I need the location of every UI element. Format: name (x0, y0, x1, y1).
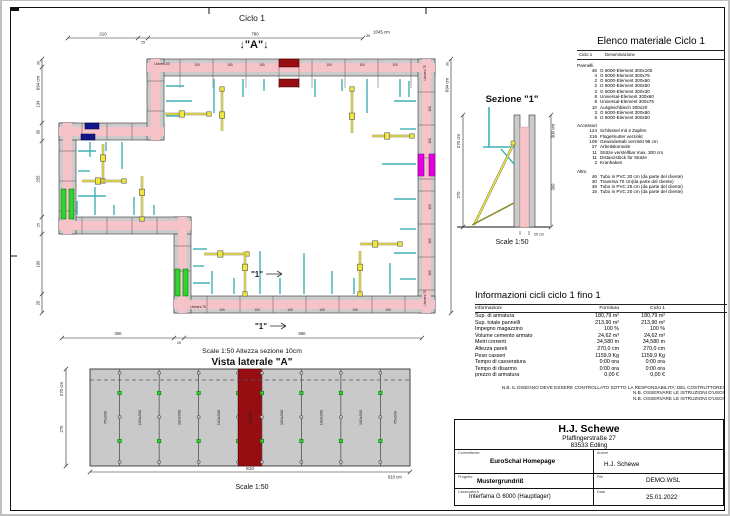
sezione-brace-head (511, 141, 515, 145)
dim-label: 810 (246, 466, 254, 471)
plan-wall-core (174, 300, 435, 309)
dim-label: 300 cm (551, 123, 556, 138)
dim-label: 20 (36, 300, 41, 305)
material-list-title: Elenco materiale Ciclo 1 (577, 36, 725, 47)
info-row: Sup. di armatura180,79 m²180,79 m² (475, 313, 727, 320)
company-address1: Pfaffingerstraße 27 (455, 435, 723, 442)
label-file: File (597, 475, 603, 479)
vista-title: Vista laterale "A" (152, 357, 352, 368)
value-committente: EuroSchal Homepage (490, 458, 555, 465)
dim-label: 30 (366, 34, 370, 38)
brace-turnbuckle-icon (139, 189, 144, 195)
panel-size-label: 100 (428, 270, 432, 276)
section-1-arrow (277, 274, 282, 277)
brace-turnbuckle-icon (349, 113, 354, 119)
material-col-name: Denominazione (605, 52, 635, 57)
vista-tie-point (260, 415, 263, 418)
panel-size-label: 100 (392, 63, 398, 67)
vista-clamp-icon (260, 439, 263, 442)
vista-clamp-icon (118, 391, 121, 394)
dim-label: 134 (36, 100, 41, 108)
plan-wall-core (59, 127, 164, 136)
info-row: prezzo di armatura0,00 €0,00 € (475, 372, 727, 379)
vista-tie-point (158, 415, 161, 418)
dim-label: 25 (37, 223, 41, 227)
cell-data: Data 25.01.2022 (594, 488, 723, 505)
material-list-header: Ciclo 1 Denominazione (577, 50, 725, 60)
brace-head-icon (243, 292, 247, 296)
vista-tie-point (197, 460, 200, 463)
vista-panel-label: 100x300 (279, 409, 284, 425)
panel-size-label: 100 (385, 308, 391, 312)
info-row: Peso casseri1159,9 Kg1159,9 Kg (475, 353, 727, 360)
dim-label: 270 (59, 425, 64, 433)
panel-size-label: 100 (428, 138, 432, 144)
vista-panel-label: 75x300 (393, 410, 398, 424)
plan-wall-core (151, 59, 160, 140)
material-col-qty: Ciclo 1 (579, 52, 605, 57)
vista-clamp-icon (157, 391, 160, 394)
cell-autore: Autore H.J. Schewe (594, 449, 723, 473)
vista-caption: Scale 1:50 (162, 484, 342, 491)
info-col-informazioni: Informazioni (475, 306, 567, 311)
info-col-fornitura: Fornitura (567, 306, 619, 311)
dim-label: 694 cm (36, 75, 41, 90)
plan-caption: Scale 1:50 Altezza sezione 10cm (142, 348, 362, 355)
value-data: 25.01.2022 (646, 494, 678, 501)
label-progetto: Progetto (458, 475, 472, 479)
dim-label: 270 (456, 191, 461, 199)
info-row: Sup. totale pannelli213,90 m²213,90 m² (475, 320, 727, 327)
dim-label: 25 (141, 41, 145, 45)
dim-label: 780 (251, 32, 259, 37)
material-item-name: G 6000-Element 300x50 (600, 115, 650, 120)
info-row: Altezza pareti270,0 cm270,0 cm (475, 346, 727, 353)
vista-tie-point (339, 415, 342, 418)
panel-size-label: 100 (352, 308, 358, 312)
vista-clamp-icon (300, 391, 303, 394)
highlighted-element-green (175, 269, 180, 296)
vista-tie-point (118, 415, 121, 418)
vista-tie-point (300, 460, 303, 463)
dim-label: 210 (99, 32, 107, 37)
vista-tie-point (260, 460, 263, 463)
highlighted-element-magenta (418, 154, 424, 176)
vista-tie-point (118, 371, 121, 374)
panel-size-label: 100 (428, 106, 432, 112)
vista-tie-point (260, 371, 263, 374)
section-1-marker: "1" (255, 322, 267, 331)
sezione-caption: Scale 1:50 (457, 239, 567, 246)
company-address2: 83533 Edling (455, 442, 723, 449)
material-item: 5G 6000-Element 300x50 (577, 115, 725, 120)
vista-panel-label: 100x300 (319, 409, 324, 425)
brace-turnbuckle-icon (219, 112, 224, 118)
sheet-page: 1001001001001001001001001001001001001001… (2, 1, 728, 514)
dim-label: 694 cm (445, 77, 450, 92)
material-item: 15Tubo in PVC 20 cm (da parte del client… (577, 189, 725, 194)
highlighted-element-red (279, 79, 299, 87)
section-1-arrow (277, 271, 282, 274)
brace-turnbuckle-icon (179, 111, 184, 117)
vista-clamp-icon (260, 391, 263, 394)
brace-turnbuckle-icon (357, 264, 362, 270)
brace-turnbuckle-icon (100, 155, 105, 161)
brace-turnbuckle-icon (385, 133, 390, 139)
sezione-concrete (520, 127, 529, 227)
vista-tie-point (339, 371, 342, 374)
highlighted-element-magenta (429, 154, 435, 176)
vista-clamp-icon (300, 439, 303, 442)
corner-element-label: Univers.75 (190, 305, 205, 309)
panel-size-label: 100 (254, 308, 260, 312)
material-item-qty: 5 (577, 115, 597, 120)
material-item-name: Tubo in PVC 20 cm (da parte del cliente) (600, 189, 683, 194)
corner-element-label: Univers.75 (423, 290, 427, 305)
vista-clamp-icon (118, 439, 121, 442)
brace-head-icon (358, 292, 362, 296)
highlighted-element-navy (85, 123, 99, 129)
highlighted-element-green (69, 189, 74, 219)
dim-label: 270 cm (456, 133, 461, 148)
cycle-info-title: Informazioni cicli ciclo 1 fino 1 (475, 290, 727, 301)
brace-turnbuckle-icon (218, 251, 223, 257)
vista-tie-point (300, 415, 303, 418)
vista-tie-point (197, 371, 200, 374)
company-name: H.J. Schewe (455, 423, 723, 435)
panel-size-label: 100 (287, 308, 293, 312)
brace-head-icon (350, 87, 354, 91)
drawing-sheet: 1001001001001001001001001001001001001001… (0, 0, 730, 516)
info-row: Metri correnti34,580 m34,580 m (475, 339, 727, 346)
vista-tie-point (379, 460, 382, 463)
dim-label: 195 (36, 260, 41, 268)
vista-clamp-icon (339, 391, 342, 394)
plan-wall-core (178, 217, 187, 313)
section-1-marker: "1" (251, 270, 263, 279)
material-item-name: Kranhaken (600, 160, 622, 165)
corner-element-label: Univers.75 (423, 65, 427, 80)
sezione-panel (514, 115, 520, 227)
brace-turnbuckle-icon (242, 264, 247, 270)
material-item-qty: 15 (577, 189, 597, 194)
panel-size-label: 100 (227, 63, 233, 67)
vista-clamp-icon (197, 439, 200, 442)
cell-casseratura: Casseratura Interfama G 6000 (Hauptlager… (455, 488, 594, 505)
vista-panel-label: 100x300 (358, 409, 363, 425)
highlighted-element-green (183, 269, 188, 296)
label-committente: Committente (458, 451, 480, 455)
vista-panel-label: 100x300 (137, 409, 142, 425)
panel-size-label: 100 (259, 63, 265, 67)
brace-turnbuckle-icon (95, 178, 100, 184)
sezione-title: Sezione "1" (457, 94, 567, 105)
dim-label: 810 cm (388, 475, 402, 480)
highlighted-element-navy (81, 134, 95, 140)
vista-tie-point (339, 460, 342, 463)
sezione-thickness-label: 25 cm (534, 233, 544, 237)
frame-corner-mark (11, 8, 19, 11)
panel-size-label: 100 (428, 238, 432, 244)
corner-element-label: Univers.60 (154, 62, 169, 66)
vista-tie-point (300, 371, 303, 374)
plan-wall-core (59, 221, 191, 230)
vista-tie-point (158, 371, 161, 374)
highlighted-element-green (61, 189, 66, 219)
vista-tie-point (158, 460, 161, 463)
vista-tie-point (379, 415, 382, 418)
nb-notes: N.B. IL DISEGNO DEVE ESSERE CONTROLLATO … (402, 385, 724, 401)
dim-label: 255 (36, 175, 41, 183)
sezione-panel (529, 115, 535, 227)
section-a-marker: ↓"A"↓ (214, 39, 294, 51)
label-autore: Autore (597, 451, 608, 455)
material-list[interactable]: Elenco materiale Ciclo 1 Ciclo 1 Denomin… (577, 36, 725, 195)
vista-clamp-icon (379, 391, 382, 394)
value-progetto: Mustergrundriß (477, 478, 524, 485)
brace-head-icon (410, 134, 414, 138)
cell-progetto: Progetto Mustergrundriß (455, 473, 594, 488)
value-autore: H.J. Schewe (604, 461, 639, 468)
vista-clamp-icon (197, 391, 200, 394)
panel-size-label: 100 (194, 63, 200, 67)
vista-tie-point (197, 415, 200, 418)
nb-note-line: N.B. OSSERVARE LE ISTRUZIONI D'USO! (402, 396, 724, 401)
vista-clamp-icon (339, 439, 342, 442)
cycle-info-header: Informazioni Fornitura Ciclo 1 (475, 304, 727, 313)
brace-head-icon (398, 242, 402, 246)
dim-label: 30 (446, 62, 450, 66)
info-row: Tempo di disarmo0:00 ora0:00 ora (475, 366, 727, 373)
vista-panel-label: 75x300 (102, 410, 107, 424)
panel-size-label: 100 (326, 63, 332, 67)
brace-head-icon (140, 217, 144, 221)
dim-label: 300 (115, 331, 123, 336)
dim-label: 1045 cm (373, 30, 390, 35)
brace-head-icon (207, 112, 211, 116)
dim-label: 25 (177, 341, 181, 345)
label-data: Data (597, 490, 605, 494)
highlighted-element-red (279, 59, 299, 67)
panel-size-label: 100 (359, 63, 365, 67)
cell-file: File DEMO.WSL (594, 473, 723, 488)
cell-committente: Committente EuroSchal Homepage (455, 449, 594, 473)
value-file: DEMO.WSL (646, 477, 680, 484)
vista-clamp-icon (379, 439, 382, 442)
vista-clamp-icon (157, 439, 160, 442)
brace-head-icon (220, 87, 224, 91)
dim-label: 30 (37, 61, 41, 65)
section-1-arrow (281, 326, 286, 329)
plan-title: Ciclo 1 (212, 13, 292, 23)
info-row: Impegno magazzino100 %100 % (475, 326, 727, 333)
vista-panel-label: 100x300 (176, 409, 181, 425)
cycle-info-table[interactable]: Informazioni cicli ciclo 1 fino 1 Inform… (475, 290, 727, 379)
dim-label: 300 (551, 183, 556, 191)
vista-tie-point (118, 460, 121, 463)
dim-label: 660 (299, 331, 307, 336)
info-row: Tempo di casseratura0:00 ora0:00 ora (475, 359, 727, 366)
material-item-qty: 2 (577, 160, 597, 165)
brace-turnbuckle-icon (373, 241, 378, 247)
dim-label: 270 cm (59, 381, 64, 396)
panel-size-label: 100 (319, 308, 325, 312)
section-1-arrow (281, 323, 286, 326)
panel-size-label: 100 (428, 204, 432, 210)
value-casseratura: Interfama G 6000 (Hauptlager) (469, 494, 551, 500)
vista-tie-point (379, 371, 382, 374)
info-row: Volume cemento armato24,62 m³24,62 m³ (475, 333, 727, 340)
material-item: 2Kranhaken (577, 160, 725, 165)
panel-size-label: 100 (219, 308, 225, 312)
vista-panel-label: 100x300 (216, 409, 221, 425)
dim-label: 30 (36, 129, 41, 134)
info-col-ciclo1: Ciclo 1 (619, 306, 665, 311)
brace-head-icon (122, 179, 126, 183)
vista-panel-label: 60x300 (248, 410, 253, 424)
title-block[interactable]: H.J. Schewe Pfaffingerstraße 27 83533 Ed… (454, 419, 724, 506)
